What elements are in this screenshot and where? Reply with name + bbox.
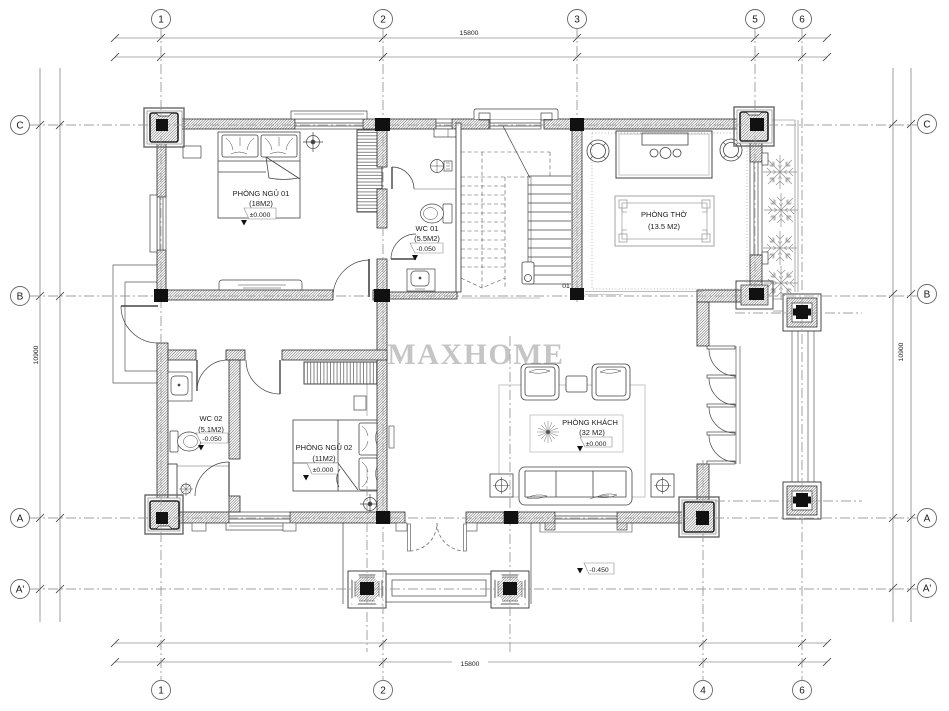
svg-text:1: 1 xyxy=(158,15,164,26)
svg-text:A': A' xyxy=(16,585,25,596)
svg-text:5: 5 xyxy=(752,15,758,26)
svg-text:(13.5 M2): (13.5 M2) xyxy=(648,222,681,231)
svg-text:(32 M2): (32 M2) xyxy=(579,428,605,437)
svg-text:C: C xyxy=(923,120,930,131)
svg-text:-0.050: -0.050 xyxy=(416,246,435,253)
svg-text:-0.050: -0.050 xyxy=(202,436,221,443)
svg-text:1: 1 xyxy=(158,686,164,697)
svg-text:10900: 10900 xyxy=(33,345,40,364)
svg-text:A': A' xyxy=(923,584,932,595)
svg-text:PHÒNG THỜ: PHÒNG THỜ xyxy=(641,210,687,219)
svg-text:±0.000: ±0.000 xyxy=(586,441,607,448)
svg-text:2: 2 xyxy=(380,686,386,697)
svg-text:01: 01 xyxy=(562,283,570,290)
svg-text:(18M2): (18M2) xyxy=(249,199,273,208)
svg-text:2: 2 xyxy=(380,15,386,26)
svg-text:PHÒNG KHÁCH: PHÒNG KHÁCH xyxy=(562,418,618,427)
svg-text:B: B xyxy=(924,290,931,301)
svg-text:(5.5M2): (5.5M2) xyxy=(414,234,440,243)
svg-text:(5.1M2): (5.1M2) xyxy=(198,425,224,434)
svg-text:15800: 15800 xyxy=(460,30,479,37)
svg-text:-0.450: -0.450 xyxy=(589,567,608,574)
svg-text:A: A xyxy=(17,514,24,525)
svg-text:A: A xyxy=(924,514,931,525)
svg-text:6: 6 xyxy=(799,15,805,26)
svg-text:PHÒNG NGỦ 01: PHÒNG NGỦ 01 xyxy=(233,189,290,198)
svg-text:10900: 10900 xyxy=(898,342,905,361)
svg-text:WC 01: WC 01 xyxy=(416,224,439,233)
svg-text:PHÒNG NGỦ 02: PHÒNG NGỦ 02 xyxy=(296,443,353,452)
svg-text:±0.000: ±0.000 xyxy=(250,212,271,219)
svg-text:6: 6 xyxy=(799,686,805,697)
svg-text:C: C xyxy=(16,121,23,132)
svg-text:15800: 15800 xyxy=(461,661,480,668)
svg-text:B: B xyxy=(17,292,24,303)
svg-text:3: 3 xyxy=(574,15,580,26)
svg-text:4: 4 xyxy=(700,686,706,697)
svg-text:(11M2): (11M2) xyxy=(312,454,336,463)
svg-text:±0.000: ±0.000 xyxy=(313,467,334,474)
svg-text:WC 02: WC 02 xyxy=(200,414,223,423)
